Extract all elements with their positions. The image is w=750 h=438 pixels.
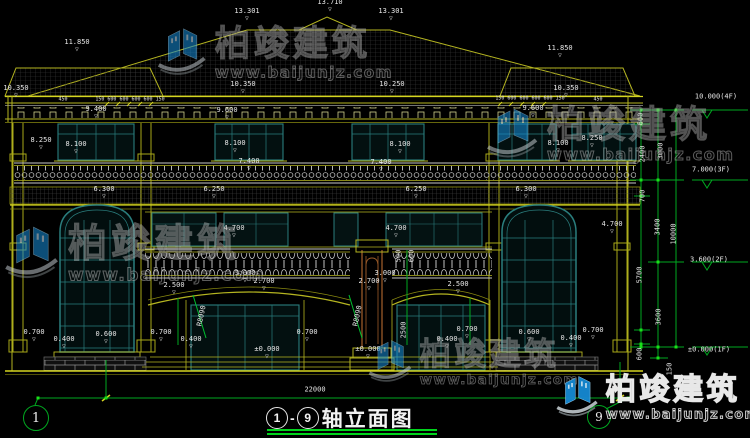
watermark-logo-icon: [2, 225, 61, 284]
watermark-logo-icon: [366, 339, 414, 387]
watermark-brand-text: 柏竣建筑: [606, 374, 750, 406]
watermark-brand-text: 柏竣建筑: [420, 338, 579, 371]
watermark-url-text: www.baijunjz.com: [215, 63, 393, 81]
watermark: 柏竣建筑 www.baijunjz.com: [554, 374, 750, 421]
watermark-logo-icon: [155, 27, 208, 80]
watermark: 柏竣建筑 www.baijunjz.com: [484, 106, 734, 164]
watermark-logo-icon: [554, 375, 600, 421]
watermark: 柏竣建筑 www.baijunjz.com: [366, 338, 579, 387]
watermark-url-text: www.baijunjz.com: [68, 265, 265, 285]
watermark-brand-text: 柏竣建筑: [68, 224, 265, 265]
watermark-brand-text: 柏竣建筑: [547, 106, 734, 145]
cad-elevation-sheet: 13.710▽13.301▽13.301▽11.850▽11.850▽10.35…: [0, 0, 750, 438]
watermark: 柏竣建筑 www.baijunjz.com: [2, 224, 265, 285]
watermark-logo-icon: [484, 107, 540, 163]
watermark: 柏竣建筑 www.baijunjz.com: [155, 26, 393, 81]
watermark-url-text: www.baijunjz.com: [547, 145, 734, 164]
watermark-url-text: www.baijunjz.com: [606, 406, 750, 422]
watermark-layer: 柏竣建筑 www.baijunjz.com 柏竣建筑 www.baijunjz.…: [0, 0, 750, 438]
watermark-brand-text: 柏竣建筑: [215, 26, 393, 63]
